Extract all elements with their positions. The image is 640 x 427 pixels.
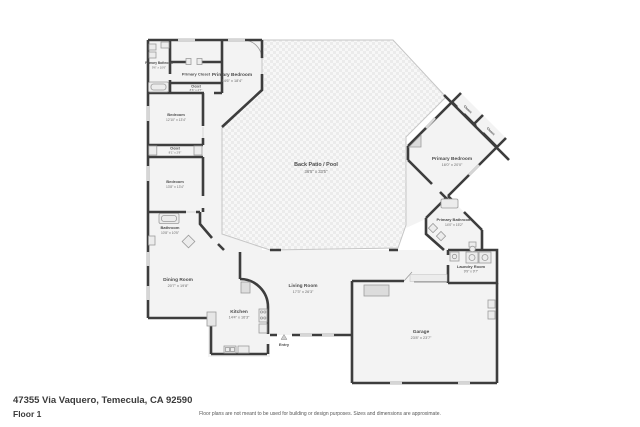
kitchen-counter-corner bbox=[241, 282, 250, 293]
svg-text:8'6" x 2'7": 8'6" x 2'7" bbox=[190, 88, 203, 92]
svg-text:Primary Bedroom: Primary Bedroom bbox=[212, 72, 252, 78]
bathtub bbox=[149, 82, 169, 92]
dishwasher bbox=[238, 346, 249, 353]
svg-text:9'6" x 10'6": 9'6" x 10'6" bbox=[152, 66, 166, 70]
room-label-closet-a: Closet 8'6" x 2'7" bbox=[190, 85, 203, 93]
laundry-step bbox=[410, 275, 447, 282]
floor-plan-canvas: Primary Bathroom 9'6" x 10'6" Primary Cl… bbox=[0, 0, 640, 427]
svg-text:Primary Bedroom: Primary Bedroom bbox=[432, 156, 472, 162]
room-label-entry: Entry bbox=[279, 342, 290, 347]
svg-text:Dining Room: Dining Room bbox=[163, 277, 193, 283]
oven bbox=[259, 324, 267, 333]
room-label-living-room: Living Room 17'3" x 26'3" bbox=[288, 283, 317, 294]
svg-text:Primary Bathroom: Primary Bathroom bbox=[145, 61, 173, 65]
svg-text:12'10" x 13'4": 12'10" x 13'4" bbox=[166, 118, 187, 122]
dryer bbox=[479, 252, 491, 263]
corner-fireplace bbox=[409, 135, 421, 147]
svg-text:Living Room: Living Room bbox=[288, 283, 317, 289]
window-box bbox=[207, 312, 216, 326]
svg-text:Back Patio / Pool: Back Patio / Pool bbox=[294, 162, 338, 168]
svg-text:36'5" x 33'5": 36'5" x 33'5" bbox=[305, 169, 328, 174]
svg-text:Entry: Entry bbox=[279, 342, 290, 347]
svg-text:Laundry Room: Laundry Room bbox=[457, 264, 486, 269]
svg-text:9'9" x 9'7": 9'9" x 9'7" bbox=[464, 270, 479, 274]
toilet bbox=[469, 242, 476, 252]
room-label-kitchen: Kitchen 14'4" x 16'3" bbox=[229, 309, 250, 320]
svg-text:Garage: Garage bbox=[413, 329, 430, 335]
svg-text:16'0" x 20'0": 16'0" x 20'0" bbox=[442, 163, 463, 167]
room-label-primary-closet: Primary Closet bbox=[182, 72, 211, 77]
kitchen-sink bbox=[224, 346, 236, 353]
svg-text:Bedroom: Bedroom bbox=[166, 179, 184, 184]
disclaimer-text: Floor plans are not meant to be used for… bbox=[0, 411, 640, 417]
svg-text:Primary Closet: Primary Closet bbox=[182, 72, 211, 77]
svg-text:13'8" x 13'4": 13'8" x 13'4" bbox=[166, 185, 185, 189]
svg-text:Kitchen: Kitchen bbox=[230, 309, 248, 315]
stove bbox=[259, 309, 267, 322]
floor-plan-page: Primary Bathroom 9'6" x 10'6" Primary Cl… bbox=[0, 0, 640, 427]
svg-text:Primary Bathroom: Primary Bathroom bbox=[437, 217, 472, 222]
svg-text:8'1" x 2'8": 8'1" x 2'8" bbox=[169, 151, 182, 155]
svg-text:14'6" x 18'4": 14'6" x 18'4" bbox=[222, 79, 243, 83]
room-label-closet-b: Closet 8'1" x 2'8" bbox=[169, 147, 182, 155]
svg-text:20'7" x 19'8": 20'7" x 19'8" bbox=[168, 284, 189, 288]
fireplace bbox=[364, 285, 389, 296]
svg-text:23'8" x 23'7": 23'8" x 23'7" bbox=[411, 336, 432, 340]
bathtub bbox=[159, 214, 179, 224]
bathtub bbox=[441, 199, 458, 208]
toilet bbox=[149, 236, 156, 245]
laundry-sink bbox=[450, 252, 459, 261]
svg-text:10'8" x 10'5": 10'8" x 10'5" bbox=[161, 231, 180, 235]
svg-text:Bathroom: Bathroom bbox=[161, 225, 180, 230]
svg-text:14'0" x 15'2": 14'0" x 15'2" bbox=[445, 223, 464, 227]
svg-text:Bedroom: Bedroom bbox=[167, 112, 185, 117]
entry-arrow-icon bbox=[281, 335, 287, 340]
address-line: 47355 Via Vaquero, Temecula, CA 92590 bbox=[13, 395, 192, 406]
washer bbox=[466, 252, 478, 263]
room-label-garage: Garage 23'8" x 23'7" bbox=[411, 329, 432, 340]
svg-text:17'3" x 26'3": 17'3" x 26'3" bbox=[293, 290, 314, 294]
svg-text:14'4" x 16'3": 14'4" x 16'3" bbox=[229, 316, 250, 320]
